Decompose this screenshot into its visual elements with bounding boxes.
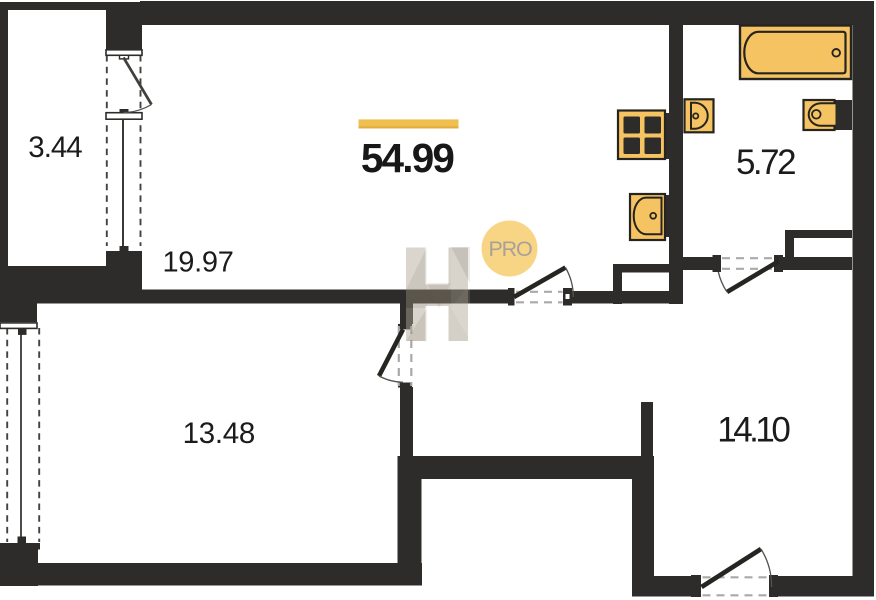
svg-text:14.10: 14.10 — [717, 411, 790, 450]
svg-text:19.97: 19.97 — [162, 246, 233, 278]
svg-text:13.48: 13.48 — [183, 417, 255, 450]
svg-text:5.72: 5.72 — [736, 143, 795, 182]
svg-text:54.99: 54.99 — [361, 135, 455, 181]
svg-text:PRO: PRO — [489, 237, 532, 261]
svg-text:3.44: 3.44 — [28, 131, 82, 164]
